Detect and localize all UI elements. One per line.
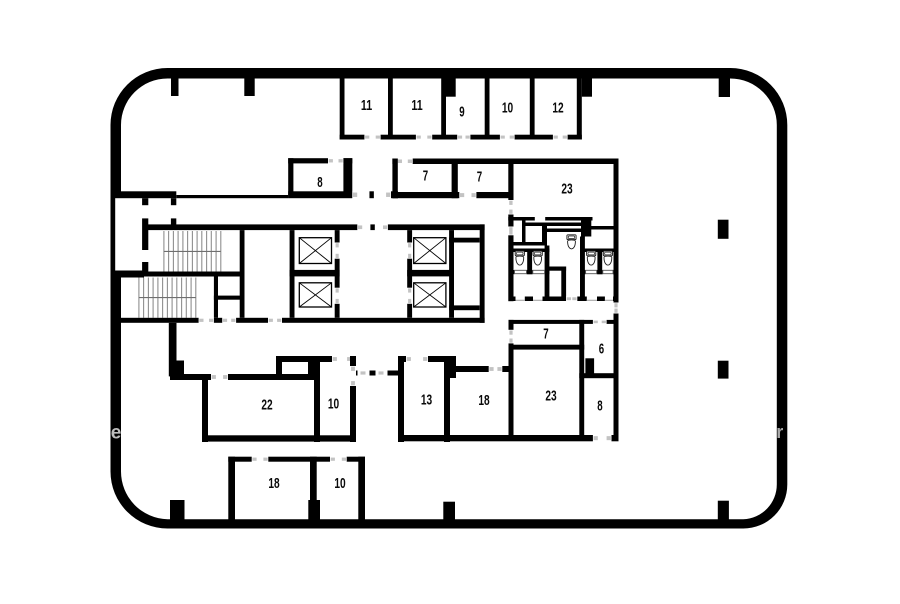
svg-text:23: 23 bbox=[545, 389, 556, 405]
svg-text:7: 7 bbox=[423, 169, 428, 185]
svg-text:8: 8 bbox=[317, 175, 322, 191]
svg-text:8: 8 bbox=[597, 399, 602, 415]
svg-text:18: 18 bbox=[268, 476, 279, 492]
svg-text:7: 7 bbox=[477, 170, 482, 186]
svg-text:12: 12 bbox=[552, 101, 563, 117]
svg-text:11: 11 bbox=[411, 98, 422, 114]
svg-text:10: 10 bbox=[502, 101, 513, 117]
svg-text:13: 13 bbox=[421, 393, 432, 409]
svg-text:9: 9 bbox=[459, 105, 464, 121]
svg-text:10: 10 bbox=[334, 476, 345, 492]
svg-text:10: 10 bbox=[328, 397, 339, 413]
svg-text:11: 11 bbox=[361, 98, 372, 114]
svg-text:r: r bbox=[776, 422, 783, 442]
svg-text:22: 22 bbox=[261, 398, 272, 414]
svg-text:6: 6 bbox=[599, 342, 604, 358]
svg-text:18: 18 bbox=[478, 393, 489, 409]
svg-text:23: 23 bbox=[561, 182, 572, 198]
svg-text:7: 7 bbox=[543, 327, 548, 343]
svg-text:e: e bbox=[111, 422, 122, 443]
